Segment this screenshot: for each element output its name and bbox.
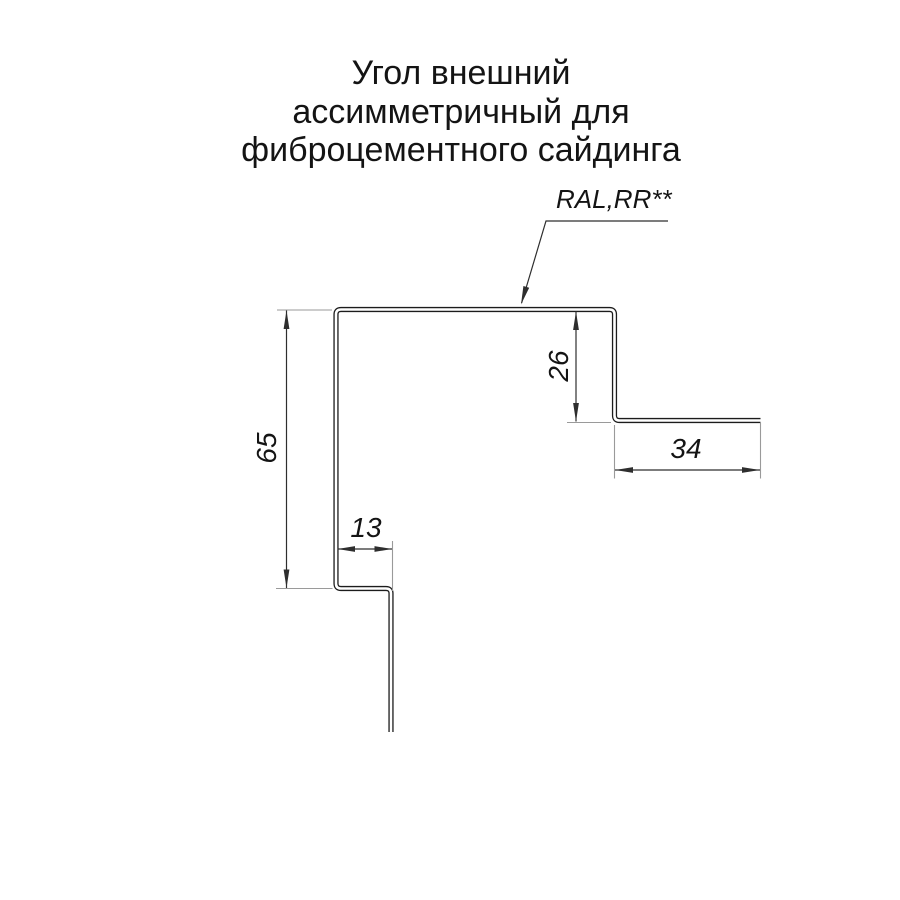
drawing-page: Угол внешний ассимметричный для фиброцем… — [0, 0, 900, 900]
technical-drawing-canvas: Угол внешний ассимметричный для фиброцем… — [0, 0, 900, 900]
dimension-26-arrow-down-icon — [573, 403, 579, 422]
drawing-title: Угол внешний ассимметричный для фиброцем… — [241, 54, 681, 169]
coating-callout-leader-line — [522, 221, 668, 303]
dimension-34-value: 34 — [670, 433, 701, 464]
coating-callout-arrow-icon — [521, 286, 529, 305]
dimension-65: 65 — [251, 310, 333, 589]
dimension-26: 26 — [543, 312, 611, 423]
coating-callout: RAL,RR** — [521, 184, 672, 305]
dimension-13-arrow-left-icon — [338, 546, 356, 552]
coating-callout-label: RAL,RR** — [556, 184, 672, 214]
dimension-65-arrow-down-icon — [284, 570, 290, 589]
dimension-26-value: 26 — [543, 350, 574, 383]
dimension-34-arrow-right-icon — [742, 467, 760, 473]
title-line-1: Угол внешний — [352, 54, 571, 92]
dimension-26-arrow-up-icon — [573, 312, 579, 331]
dimension-34: 34 — [615, 423, 761, 479]
dimension-65-value: 65 — [251, 432, 282, 464]
title-line-3: фиброцементного сайдинга — [241, 131, 681, 169]
dimension-65-arrow-up-icon — [284, 311, 290, 330]
dimension-13-value: 13 — [350, 512, 382, 543]
dimension-13: 13 — [338, 512, 393, 591]
title-line-2: ассимметричный для — [292, 93, 629, 131]
dimension-13-arrow-right-icon — [375, 546, 393, 552]
dimension-34-arrow-left-icon — [615, 467, 633, 473]
